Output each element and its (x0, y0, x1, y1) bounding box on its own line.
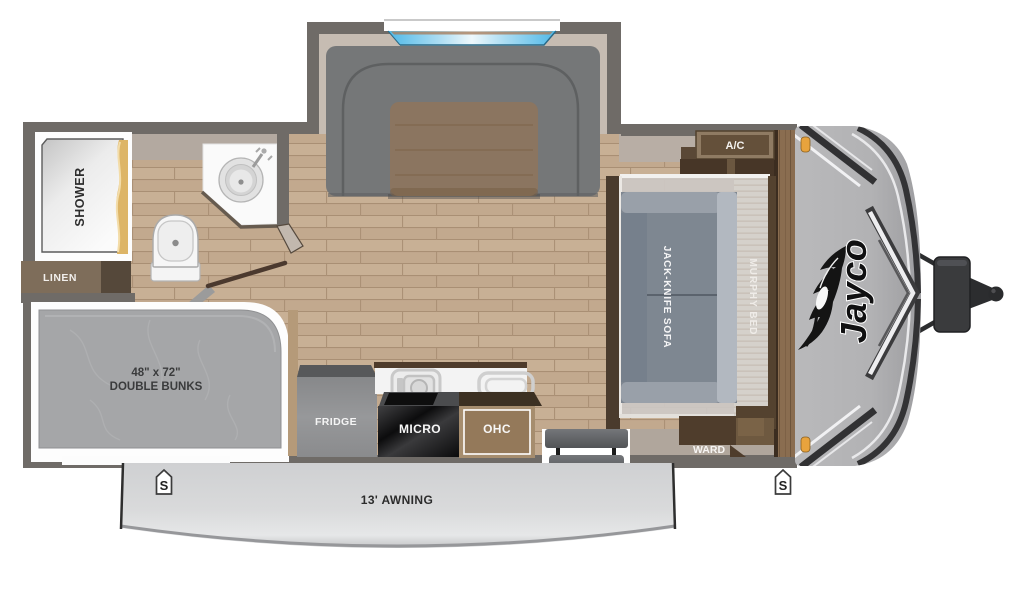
svg-text:48" x 72": 48" x 72" (131, 367, 180, 379)
svg-text:OHC: OHC (483, 422, 511, 436)
svg-text:13' AWNING: 13' AWNING (361, 493, 433, 507)
svg-text:MURPHY BED: MURPHY BED (747, 258, 758, 335)
svg-text:FRIDGE: FRIDGE (315, 416, 357, 428)
svg-text:A/C: A/C (726, 140, 745, 152)
svg-text:MICRO: MICRO (399, 422, 441, 436)
svg-text:SHOWER: SHOWER (73, 167, 87, 226)
svg-text:S: S (779, 478, 788, 493)
svg-text:JACK-KNIFE SOFA: JACK-KNIFE SOFA (661, 246, 672, 349)
svg-text:Jayco: Jayco (833, 239, 874, 344)
svg-text:WARD: WARD (693, 444, 725, 456)
svg-text:S: S (160, 478, 169, 493)
svg-text:DOUBLE BUNKS: DOUBLE BUNKS (110, 381, 203, 393)
svg-text:LINEN: LINEN (43, 272, 77, 284)
